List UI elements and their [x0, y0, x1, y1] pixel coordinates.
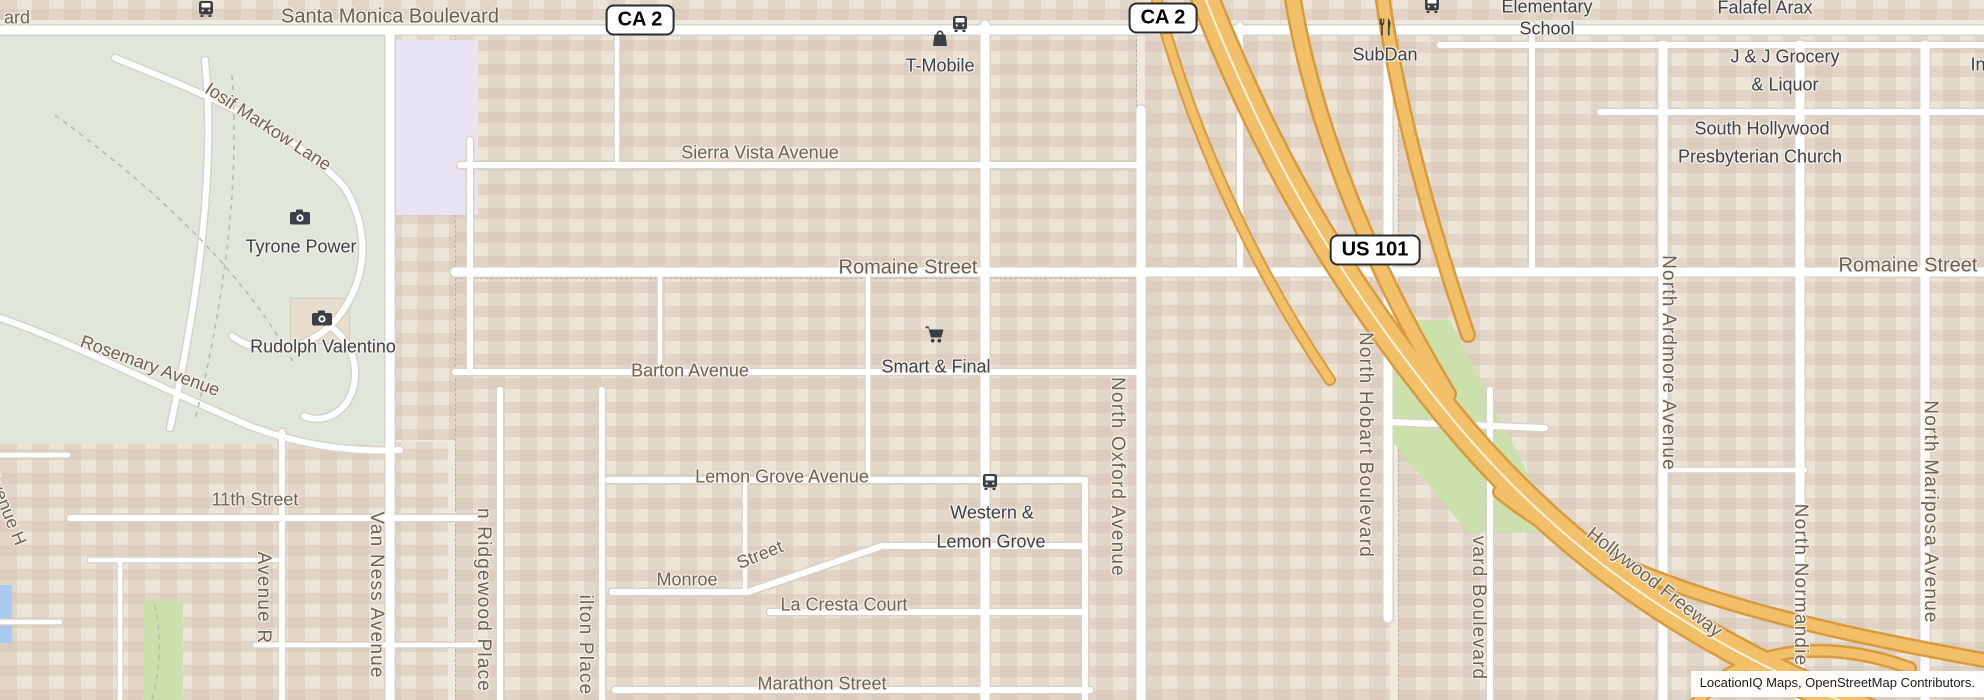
route-shield-ca2-right: CA 2: [1129, 3, 1198, 34]
streets-layer: [0, 25, 1984, 700]
route-shield-ca2-left: CA 2: [606, 5, 675, 36]
route-shield-us101: US 101: [1330, 235, 1421, 266]
road-network: [0, 0, 1984, 700]
map-attribution: LocationIQ Maps, OpenStreetMap Contribut…: [1691, 671, 1984, 697]
map-canvas[interactable]: CA 2 CA 2 US 101 ard Santa Monica Boulev…: [0, 0, 1984, 700]
freeway-layer: [1152, 0, 1984, 700]
